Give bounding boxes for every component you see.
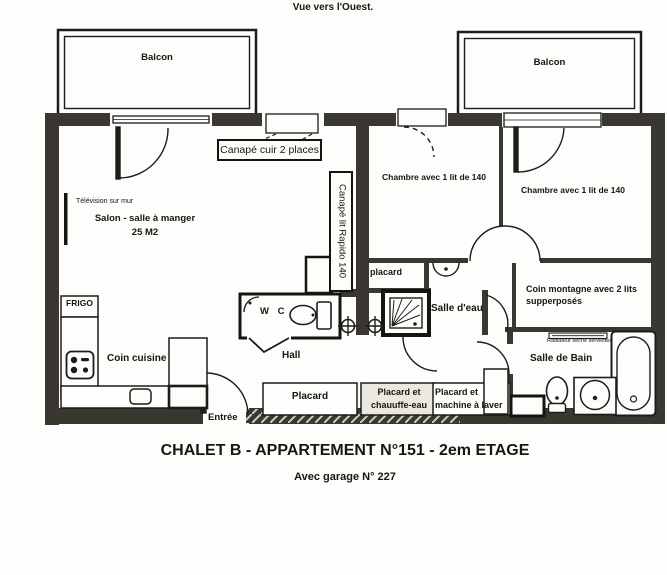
salon-area-label: 25 M2 xyxy=(70,228,220,239)
plan-title: CHALET B - APPARTEMENT N°151 - 2em ETAGE xyxy=(35,442,655,460)
wall-bedroom-divider xyxy=(499,126,503,226)
wall-bathroom-left-stub1 xyxy=(507,332,513,344)
showerroom-hall-door-arc xyxy=(403,337,437,371)
bedroom-left-door-arc xyxy=(404,127,434,157)
closet-washer-label: Placard et machine à laver xyxy=(435,386,511,411)
kitchen-label: Coin cuisine xyxy=(107,353,166,365)
salon-door-leaf xyxy=(116,127,120,179)
wc-room xyxy=(240,294,340,352)
hall-label: Hall xyxy=(282,350,300,362)
bathtub-icon xyxy=(612,332,656,416)
shower-icon xyxy=(383,291,429,335)
wall-under-bedroom-right xyxy=(540,258,652,263)
walls xyxy=(45,113,665,425)
wall-salon-divider xyxy=(356,126,369,335)
stove-icon xyxy=(67,352,94,379)
wall-bunkroom-left xyxy=(512,263,516,327)
balcony-right-outline xyxy=(458,32,641,115)
closet-heater-label: Placard et chauuffe-eau xyxy=(363,386,435,411)
bedroom-left-window xyxy=(398,109,446,126)
kitchen-sink-box xyxy=(169,386,207,408)
wall-placard-right xyxy=(424,261,429,293)
bunk-room-label: Coin montagne avec 2 lits supperposés xyxy=(526,283,652,307)
sofa-callout: Canapé cuir 2 places xyxy=(217,139,322,161)
wall-showerroom-right xyxy=(482,290,488,335)
bathroom-toilet-icon xyxy=(547,377,568,405)
kitchen-cabinet xyxy=(169,338,207,386)
radiator-note-label: Radiateur sèche serviettes xyxy=(547,338,612,344)
washer-valve-box xyxy=(511,396,544,416)
floorplan-page: Vue vers l'Ouest. Balcon Balcon Canapé c… xyxy=(0,0,667,575)
placard-small-label: placard xyxy=(370,267,402,277)
wall-left xyxy=(45,113,59,425)
balcony-right-label: Balcon xyxy=(458,58,641,69)
tv-icon xyxy=(64,193,68,245)
kitchen-counter xyxy=(61,386,170,408)
bathroom-label: Salle de Bain xyxy=(530,353,592,365)
bedroom-right-door-arc xyxy=(518,128,564,172)
wc-label: W C xyxy=(260,307,287,318)
closet-hall-label: Placard xyxy=(263,391,357,403)
salon-label: Salon - salle à manger xyxy=(70,214,220,225)
wc-toilet-tank-icon xyxy=(317,302,331,329)
bedroom-left-label: Chambre avec 1 lit de 140 xyxy=(370,173,498,183)
shower-room-label: Salle d'eau xyxy=(431,303,483,315)
sofa-bed-callout: Canapé lit Rapido 140 xyxy=(329,171,353,292)
view-note: Vue vers l'Ouest. xyxy=(278,2,388,14)
balcony-left-label: Balcon xyxy=(58,53,256,64)
bedroom-right-door-leaf xyxy=(514,127,518,172)
bunkroom-door-arc xyxy=(486,295,508,331)
entry-label: Entrée xyxy=(208,413,238,424)
tv-note-label: Télévision sur mur xyxy=(76,198,133,206)
balcony-left-outline xyxy=(58,30,256,115)
kitchen-sink-square xyxy=(130,389,151,404)
wall-under-bedroom-left xyxy=(362,258,468,263)
bedroom-right-label: Chambre avec 1 lit de 140 xyxy=(508,186,638,196)
washbasin-icon xyxy=(433,263,459,276)
plan-subtitle: Avec garage N° 227 xyxy=(35,471,655,484)
corridor-door-arc xyxy=(470,226,540,261)
fridge-label: FRIGO xyxy=(61,299,98,309)
salon-door-arc xyxy=(120,128,168,178)
sofa-icon xyxy=(266,114,318,133)
